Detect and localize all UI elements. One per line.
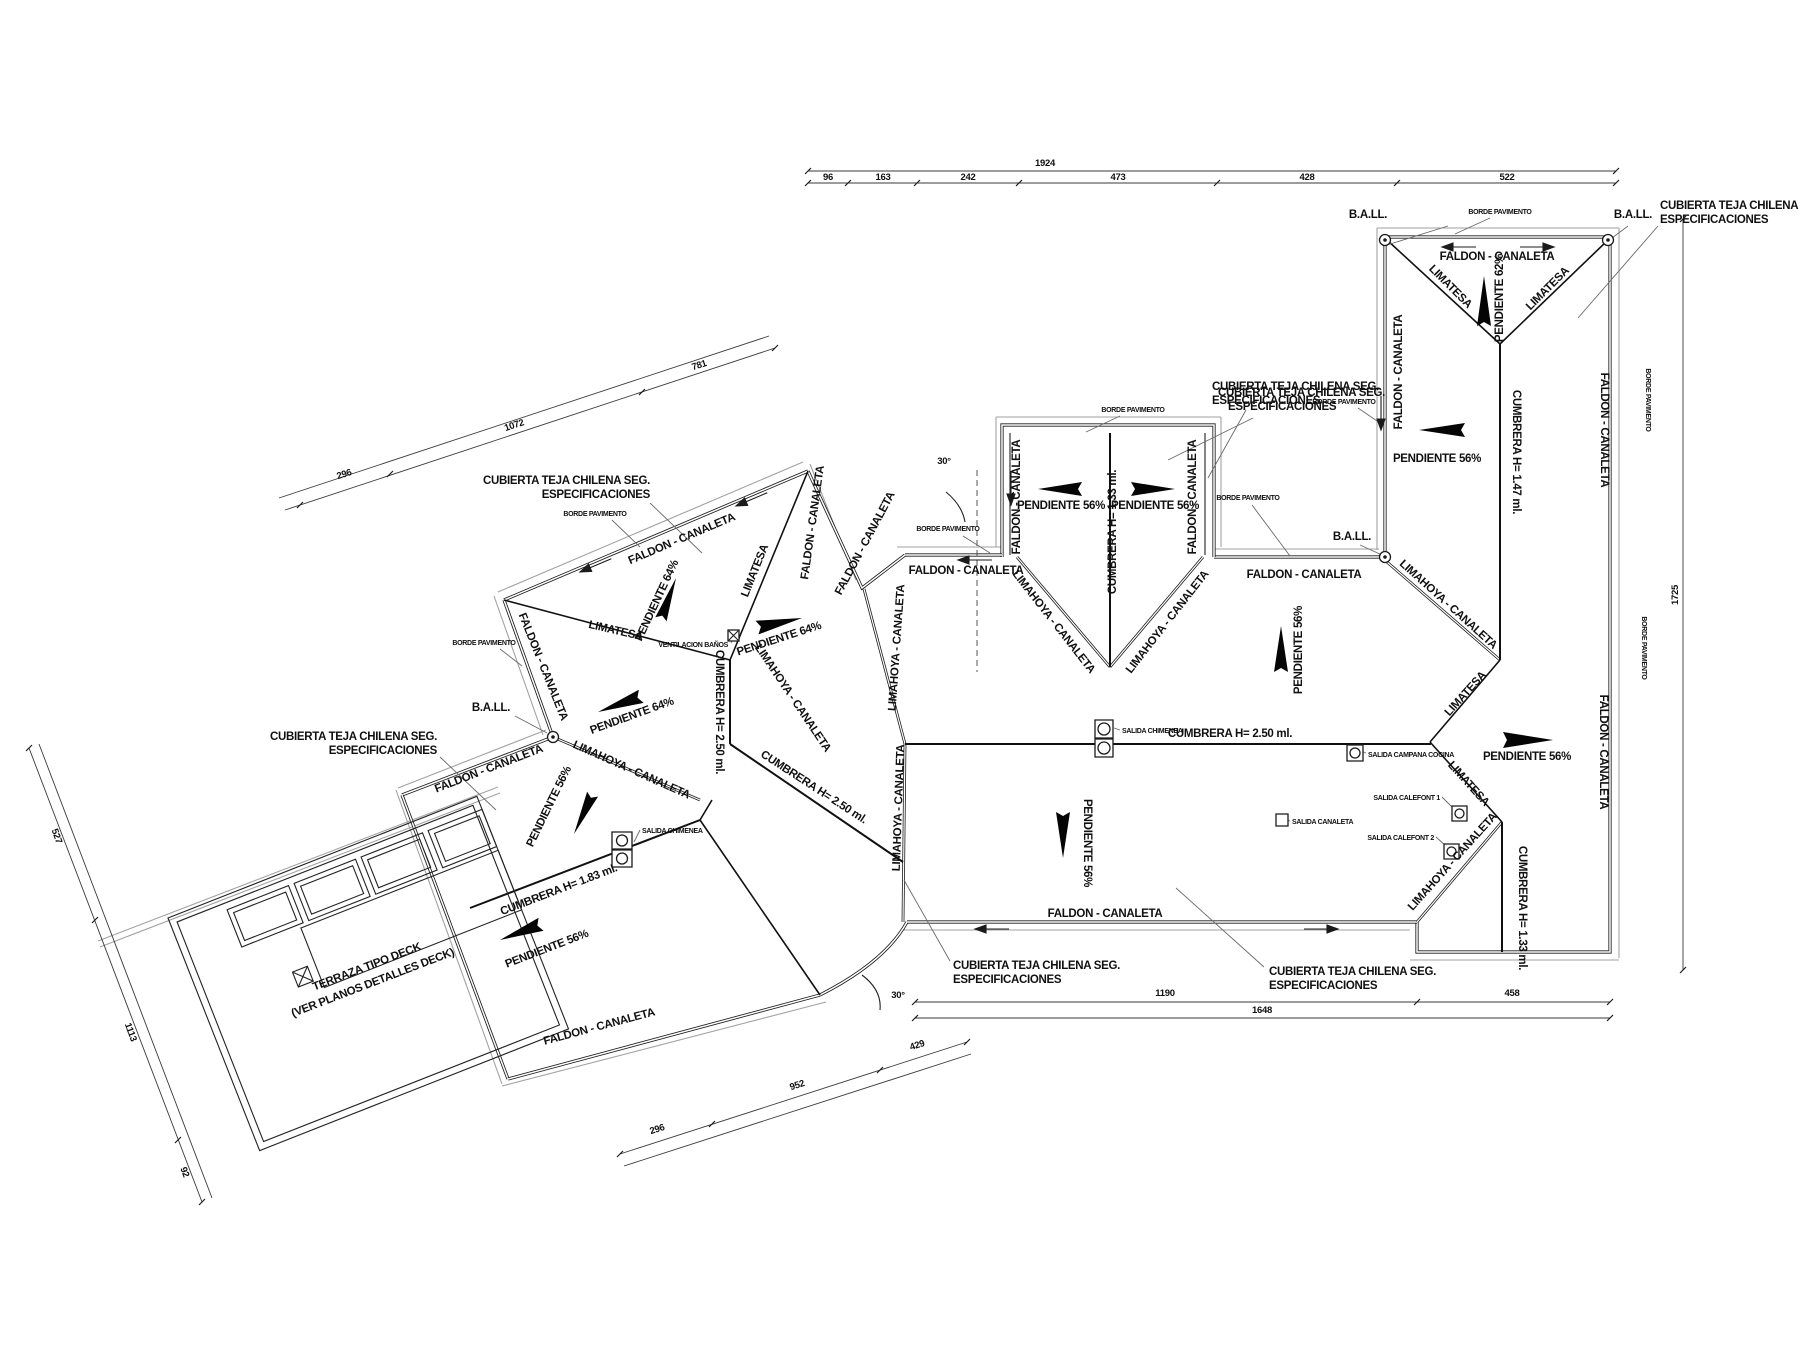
dim-bot-1190: 1190 — [1155, 988, 1174, 999]
eave-arrow-icon — [1520, 243, 1554, 251]
ventilacion-banos: VENTILACION BAÑOS — [658, 640, 728, 649]
pendiente-56-r2: PENDIENTE 56% — [1483, 751, 1571, 763]
cubierta-pav-1: CUBIERTA TEJA CHILENA SEG. — [483, 475, 650, 487]
dim-l-1113: 1113 — [122, 1021, 139, 1043]
chimney-outlet-symbol — [1095, 720, 1113, 738]
dim-ul-296: 296 — [335, 467, 353, 482]
bath-vent-symbol — [728, 630, 739, 641]
cubierta-tm-1: CUBIERTA TEJA CHILENA SEG. — [1218, 387, 1385, 399]
cubierta-b2-1: CUBIERTA TEJA CHILENA SEG. — [1269, 966, 1436, 978]
ball-node — [548, 732, 559, 743]
faldon-r-low: FALDON - CANALETA — [1597, 695, 1609, 810]
faldon-gable-r: FALDON - CANALETA — [1187, 440, 1199, 555]
cubierta-ll-2: ESPECIFICACIONES — [329, 745, 438, 757]
dim-bl-296: 296 — [648, 1122, 666, 1137]
valley-lines — [553, 557, 1502, 922]
angle-annotations — [862, 470, 977, 1010]
limatesa-tr-r: LIMATESA — [1524, 265, 1572, 313]
slope-arrow-56-r2 — [1503, 732, 1553, 748]
slope-arrow-56-cd — [1056, 812, 1070, 858]
dim-bl-429: 429 — [908, 1038, 926, 1053]
deck-skylight-panel — [227, 809, 497, 947]
cumbrera-250-pav: CUMBRERA H= 2.50 ml. — [713, 650, 725, 774]
cumbrera-250-main: CUMBRERA H= 2.50 ml. — [1168, 728, 1292, 740]
cubierta-b1-1: CUBIERTA TEJA CHILENA SEG. — [953, 960, 1120, 972]
limatesa-r2: LIMATESA — [1445, 759, 1491, 808]
salida-canaleta: SALIDA CANALETA — [1292, 819, 1353, 826]
pendiente-56-cu: PENDIENTE 56% — [1293, 606, 1305, 694]
dim-top-522: 522 — [1500, 172, 1515, 183]
dim-bot-458: 458 — [1505, 988, 1520, 999]
ball-top-left: B.A.LL. — [1349, 209, 1387, 221]
gutter-outlet-symbol — [1276, 814, 1288, 826]
pendiente-64-b: PENDIENTE 64% — [633, 558, 681, 643]
dim-top-473: 473 — [1111, 172, 1126, 183]
cumbrera-133a: CUMBRERA H= 1.33 ml. — [1107, 470, 1119, 594]
ball-node — [1603, 235, 1614, 246]
deck-drain-symbol — [293, 966, 314, 987]
dim-l-527: 527 — [49, 827, 64, 845]
cumbrera-133b: CUMBRERA H= 1.33 ml. — [1516, 846, 1528, 970]
slope-arrow-56-cu — [1274, 626, 1288, 672]
salida-chimenea-1: SALIDA CHIMENEA — [1122, 728, 1183, 735]
cubierta-ll-1: CUBIERTA TEJA CHILENA SEG. — [270, 731, 437, 743]
borde-pav-right2: BORDE PAVIMENTO — [1640, 616, 1647, 680]
angle-bottom: 30° — [891, 990, 905, 1001]
faldon-gable-l: FALDON - CANALETA — [1011, 440, 1023, 555]
pendiente-56-cd: PENDIENTE 56% — [1081, 799, 1093, 887]
cubierta-tm-2: ESPECIFICACIONES — [1228, 401, 1337, 413]
borde-pav-ll: BORDE PAVIMENTO — [452, 640, 516, 647]
slope-arrow-56-tr — [1419, 423, 1465, 437]
pendiente-56-tr: PENDIENTE 56% — [1393, 453, 1481, 465]
eave-arrow-icon — [975, 925, 1009, 933]
slope-arrow-56-ll2 — [497, 918, 543, 947]
faldon-ll-se: FALDON - CANALETA — [542, 1006, 656, 1047]
dim-l-92: 92 — [177, 1166, 191, 1179]
slope-arrow-56-gr — [1131, 482, 1175, 496]
dim-top-total: 1924 — [1035, 158, 1056, 169]
slope-arrow-56-ll1 — [569, 792, 598, 837]
cumbrera-147: CUMBRERA H= 1.47 ml. — [1510, 390, 1522, 514]
cumbrera-250-diag: CUMBRERA H= 2.50 ml. — [758, 749, 869, 827]
faldon-bottom: FALDON - CANALETA — [1048, 908, 1163, 920]
salida-chimenea-2: SALIDA CHIMENEA — [642, 828, 703, 835]
salida-campana: SALIDA CAMPANA COCINA — [1368, 752, 1454, 759]
ball-node — [1380, 235, 1391, 246]
borde-pav-g3: BORDE PAVIMENTO — [916, 526, 980, 533]
ball-left: B.A.LL. — [472, 702, 510, 714]
ball-mid: B.A.LL. — [1333, 531, 1371, 543]
faldon-gable-eave: FALDON - CANALETA — [909, 565, 1024, 577]
dim-top-428: 428 — [1300, 172, 1315, 183]
eave-arrow-icon — [958, 556, 992, 564]
cubierta-b2-2: ESPECIFICACIONES — [1269, 980, 1378, 992]
dim-bot-1648: 1648 — [1252, 1005, 1272, 1016]
dim-top-96: 96 — [823, 172, 833, 183]
borde-pav-pav: BORDE PAVIMENTO — [563, 511, 627, 518]
limahoya-g-l: LIMAHOYA - CANALETA — [1010, 569, 1098, 676]
faldon-tr-left: FALDON - CANALETA — [1393, 315, 1405, 430]
borde-pavimento-top: BORDE PAVIMENTO — [1468, 209, 1532, 216]
chimney-outlet-symbol — [612, 832, 632, 849]
salida-calefont-2: SALIDA CALEFONT 2 — [1367, 835, 1434, 842]
eave-arrow-icon — [1442, 243, 1476, 251]
roof-eaves — [402, 237, 1610, 1079]
limatesa-tr-l: LIMATESA — [1426, 263, 1474, 311]
faldon-ll-top: FALDON - CANALETA — [433, 743, 544, 795]
chimney-outlet-symbol — [1095, 739, 1113, 757]
ball-node — [1380, 552, 1391, 563]
cubierta-b1-2: ESPECIFICACIONES — [953, 974, 1062, 986]
roof-plan-sheet: 1924961632424734285222961072781527111392… — [0, 0, 1800, 1350]
pendiente-56-gr: PENDIENTE 56% — [1111, 500, 1199, 512]
limahoya-g-r: LIMAHOYA - CANALETA — [1124, 569, 1212, 676]
pendiente-56-ll1: PENDIENTE 56% — [525, 764, 574, 849]
angle-top: 30° — [937, 456, 951, 467]
roof-plan-svg: 1924961632424734285222961072781527111392… — [0, 0, 1800, 1350]
dim-top-163: 163 — [876, 172, 891, 183]
limahoya-ll: LIMAHOYA - CANALETA — [571, 739, 692, 802]
limahoya-tr: LIMAHOYA - CANALETA — [1397, 558, 1499, 652]
dimension-lines — [26, 168, 1686, 1205]
cubierta-pav-2: ESPECIFICACIONES — [542, 489, 651, 501]
eave-arrow-icon — [1304, 925, 1338, 933]
kitchen-hood-outlet-symbol — [1347, 745, 1363, 761]
dim-top-242: 242 — [961, 172, 976, 183]
limahoya-c1: LIMAHOYA - CANALETA — [887, 584, 908, 711]
pendiente-62: PENDIENTE 62% — [1494, 254, 1506, 342]
borde-pav-right1: BORDE PAVIMENTO — [1644, 368, 1651, 432]
ball-top-right: B.A.LL. — [1614, 209, 1652, 221]
dim-bl-952: 952 — [788, 1078, 806, 1093]
pendiente-56-gl: PENDIENTE 56% — [1017, 500, 1105, 512]
cubierta-tr-2: ESPECIFICACIONES — [1660, 214, 1769, 226]
dim-right-1725: 1725 — [1670, 584, 1681, 605]
deck-terrace — [168, 796, 569, 1150]
borde-pav-g2: BORDE PAVIMENTO — [1216, 495, 1280, 502]
calefont-outlet-symbol — [1452, 806, 1467, 821]
faldon-mid-right: FALDON - CANALETA — [1247, 569, 1362, 581]
salida-calefont-1: SALIDA CALEFONT 1 — [1373, 795, 1440, 802]
limatesa-r1: LIMATESA — [1443, 669, 1489, 718]
limahoya-pav: LIMAHOYA - CANALETA — [752, 642, 833, 754]
cubierta-tr-1: CUBIERTA TEJA CHILENA SEG. — [1660, 200, 1800, 212]
slope-arrow-56-gl — [1038, 482, 1082, 496]
faldon-tr-right: FALDON - CANALETA — [1598, 373, 1610, 488]
slope-arrow-62 — [1477, 276, 1491, 326]
limahoya-r2: LIMAHOYA - CANALETA — [1406, 811, 1500, 913]
pavement-border-lines — [98, 228, 1619, 1086]
borde-pav-gable: BORDE PAVIMENTO — [1101, 407, 1165, 414]
